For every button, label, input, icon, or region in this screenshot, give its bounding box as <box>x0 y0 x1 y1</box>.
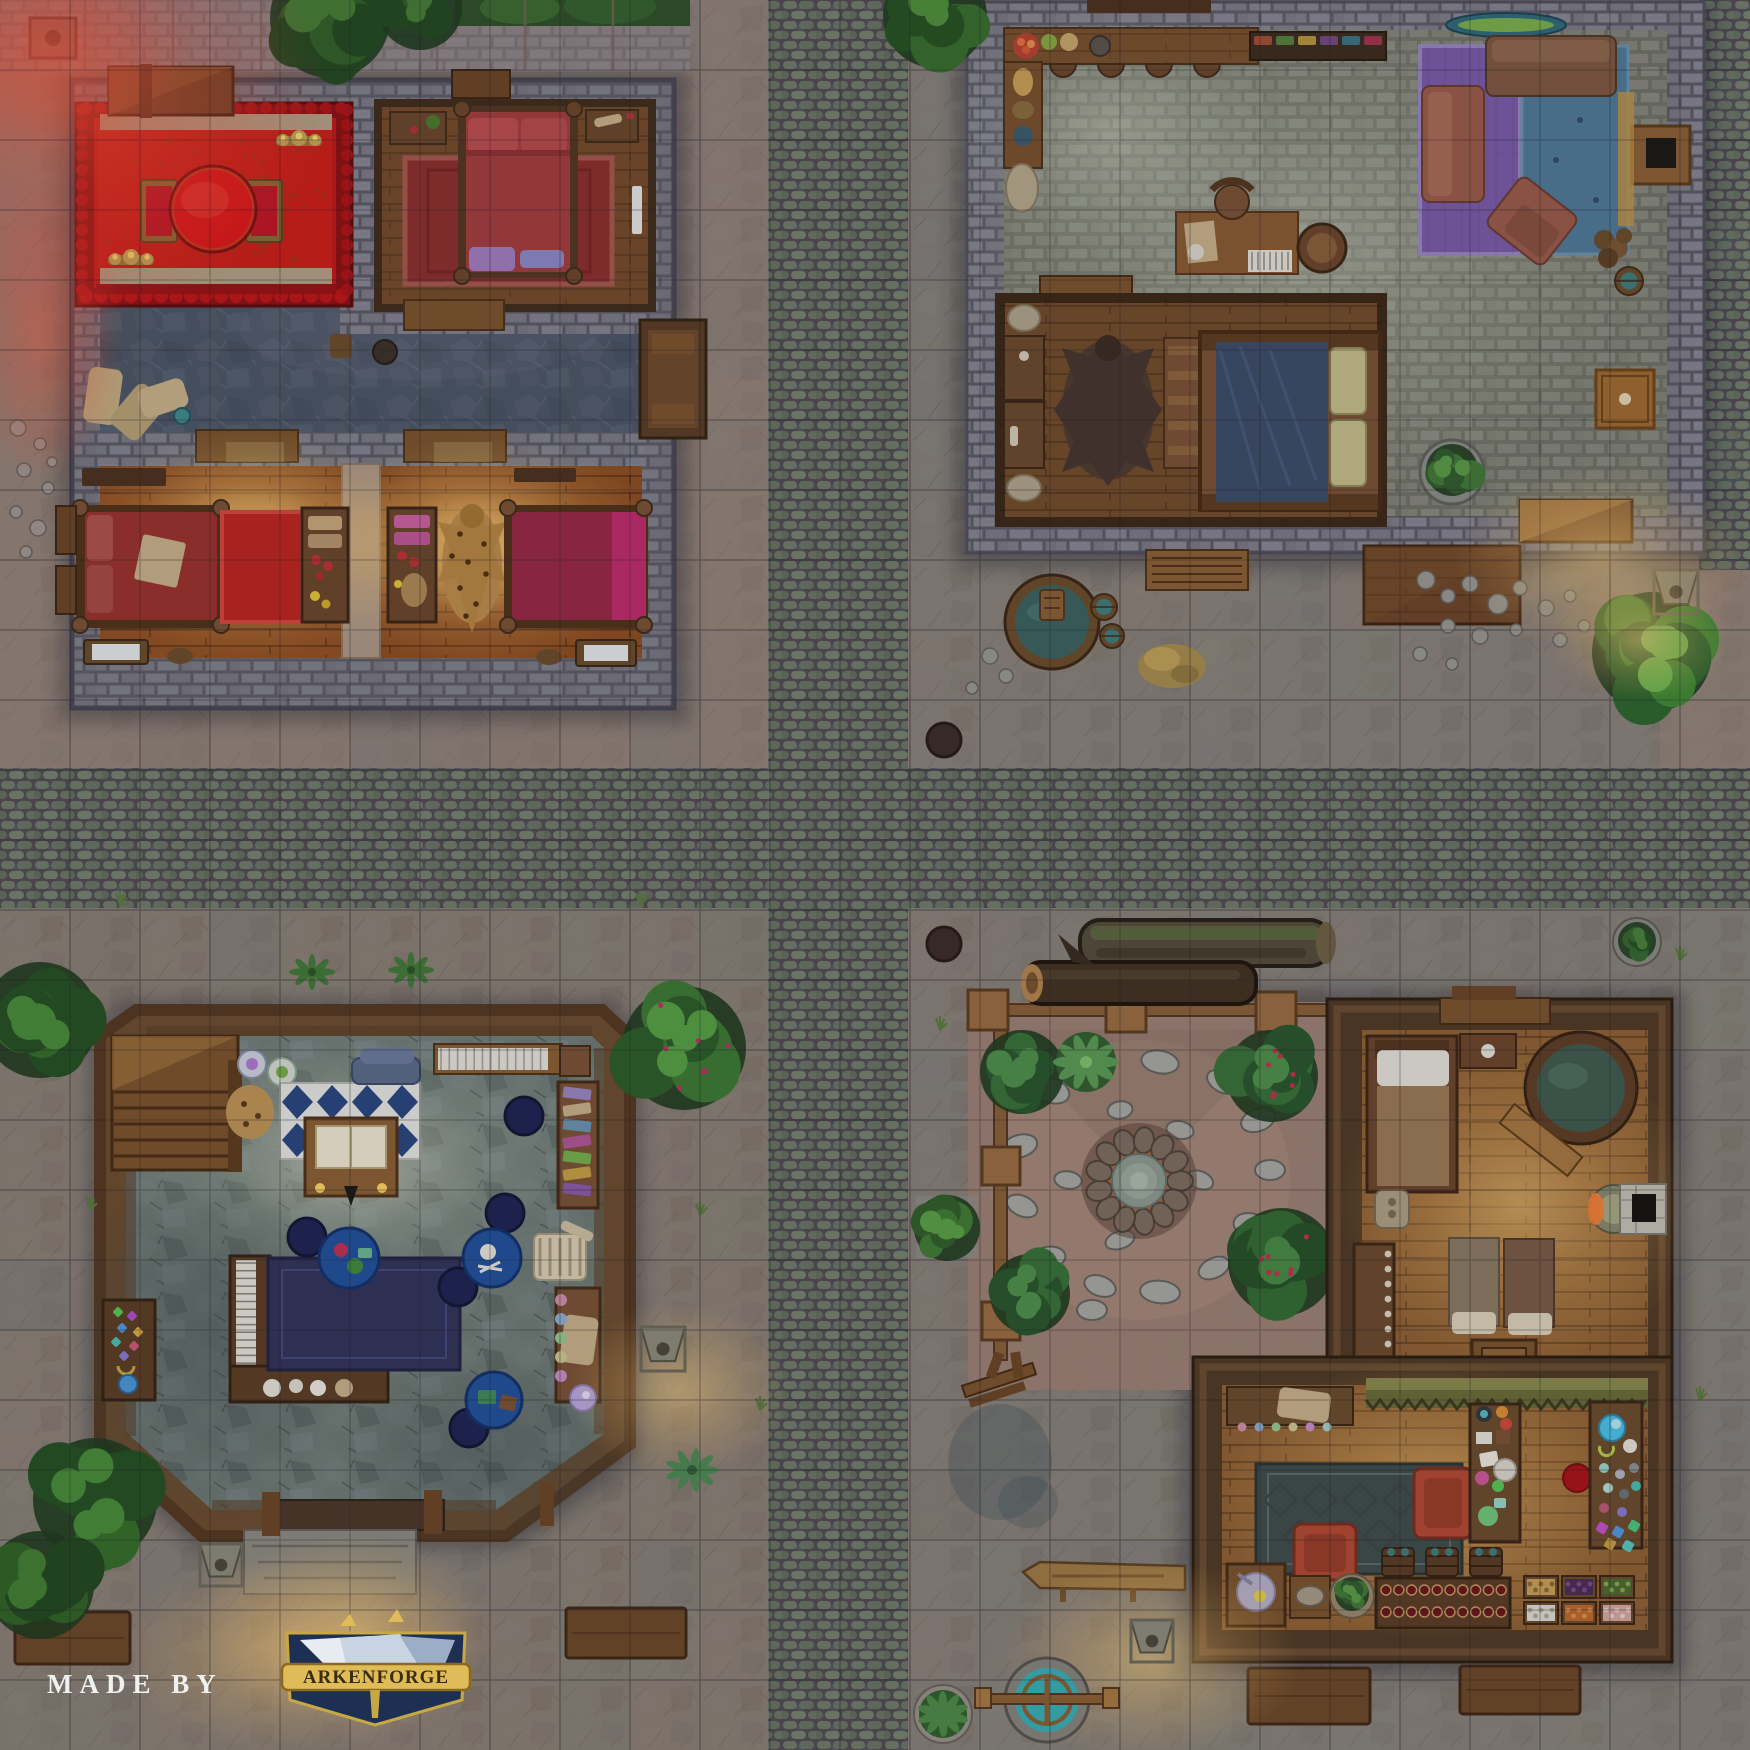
svg-text:MADE BY: MADE BY <box>47 1669 223 1699</box>
svg-text:ARKENFORGE: ARKENFORGE <box>303 1667 449 1688</box>
